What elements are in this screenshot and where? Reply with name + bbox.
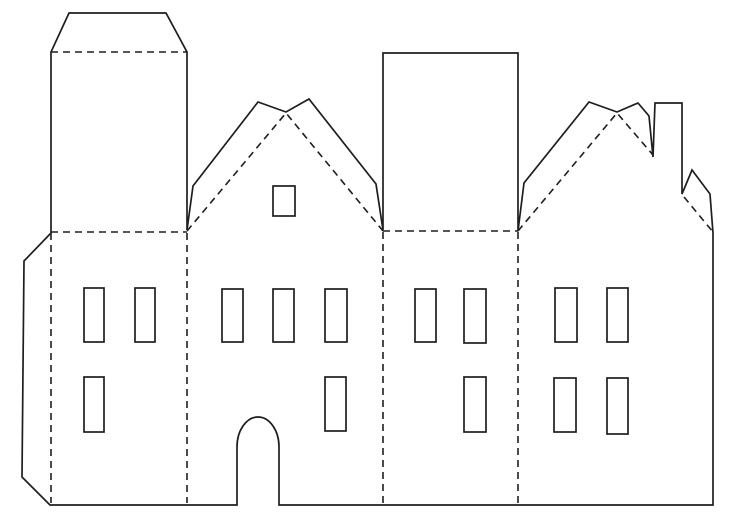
- papercraft-template-sheet: [0, 0, 735, 520]
- third-house-window-bottom-1-cutout: [464, 377, 486, 432]
- right-house-window-top-2-cutout: [607, 288, 628, 342]
- sheet-background: [0, 0, 735, 520]
- left-house-window-top-1-cutout: [84, 288, 104, 342]
- right-house-window-bottom-1-cutout: [554, 378, 576, 432]
- middle-house-window-top-1-cutout: [222, 289, 243, 342]
- middle-house-attic-window-cutout: [273, 186, 295, 216]
- middle-house-window-bottom-1-cutout: [325, 377, 346, 431]
- middle-house-window-top-2-cutout: [273, 289, 294, 342]
- third-house-window-top-1-cutout: [415, 289, 436, 342]
- paper-house-template-drawing: [0, 0, 735, 520]
- right-house-window-top-1-cutout: [555, 288, 577, 342]
- third-house-window-top-2-cutout: [464, 289, 486, 343]
- middle-house-window-top-3-cutout: [325, 289, 347, 342]
- right-house-window-bottom-2-cutout: [607, 378, 628, 434]
- left-house-window-bottom-1-cutout: [84, 377, 104, 432]
- left-house-window-top-2-cutout: [135, 288, 155, 342]
